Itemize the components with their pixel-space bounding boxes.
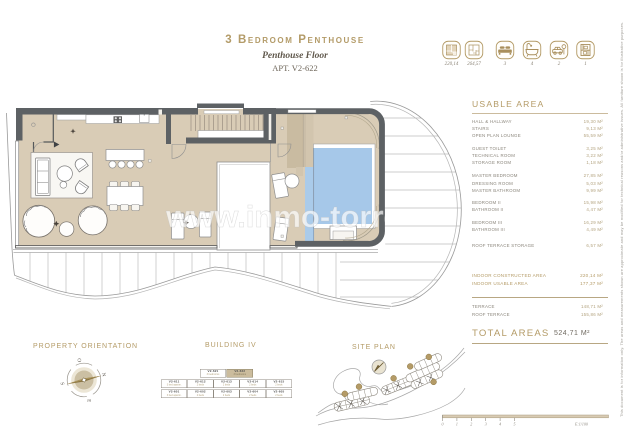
svg-text:1: 1 bbox=[456, 422, 458, 427]
svg-text:S: S bbox=[59, 382, 66, 386]
svg-text:0: 0 bbox=[442, 422, 444, 427]
svg-text:www.inmo-torrevieja: www.inmo-torrevieja bbox=[165, 199, 471, 234]
svg-text:O: O bbox=[76, 358, 82, 362]
svg-text:N: N bbox=[100, 372, 107, 377]
svg-text:4: 4 bbox=[499, 422, 501, 427]
svg-text:2: 2 bbox=[470, 422, 472, 427]
svg-text:E:1/100: E:1/100 bbox=[574, 422, 588, 427]
svg-text:5: 5 bbox=[514, 422, 516, 427]
svg-text:3: 3 bbox=[485, 422, 487, 427]
svg-text:E: E bbox=[86, 399, 92, 402]
